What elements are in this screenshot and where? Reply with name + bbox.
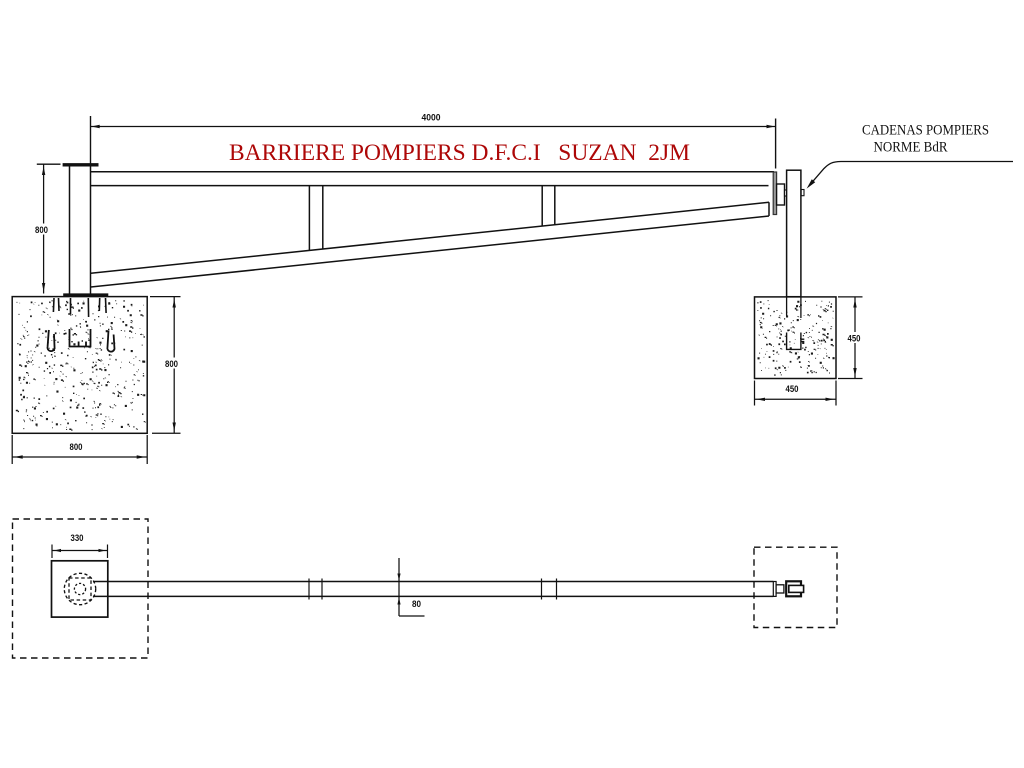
svg-text:CADENAS POMPIERS: CADENAS POMPIERS	[862, 123, 989, 139]
svg-text:330: 330	[71, 533, 84, 543]
svg-text:NORME BdR: NORME BdR	[874, 140, 948, 156]
svg-text:800: 800	[35, 225, 48, 235]
svg-text:800: 800	[165, 359, 178, 369]
svg-text:BARRIERE POMPIERS D.F.C.I SU: BARRIERE POMPIERS D.F.C.I SUZAN 2JM	[229, 140, 690, 165]
svg-text:800: 800	[70, 442, 83, 452]
svg-text:450: 450	[786, 384, 799, 394]
svg-text:4000: 4000	[422, 113, 441, 123]
svg-text:80: 80	[412, 599, 421, 609]
svg-text:450: 450	[848, 334, 861, 344]
